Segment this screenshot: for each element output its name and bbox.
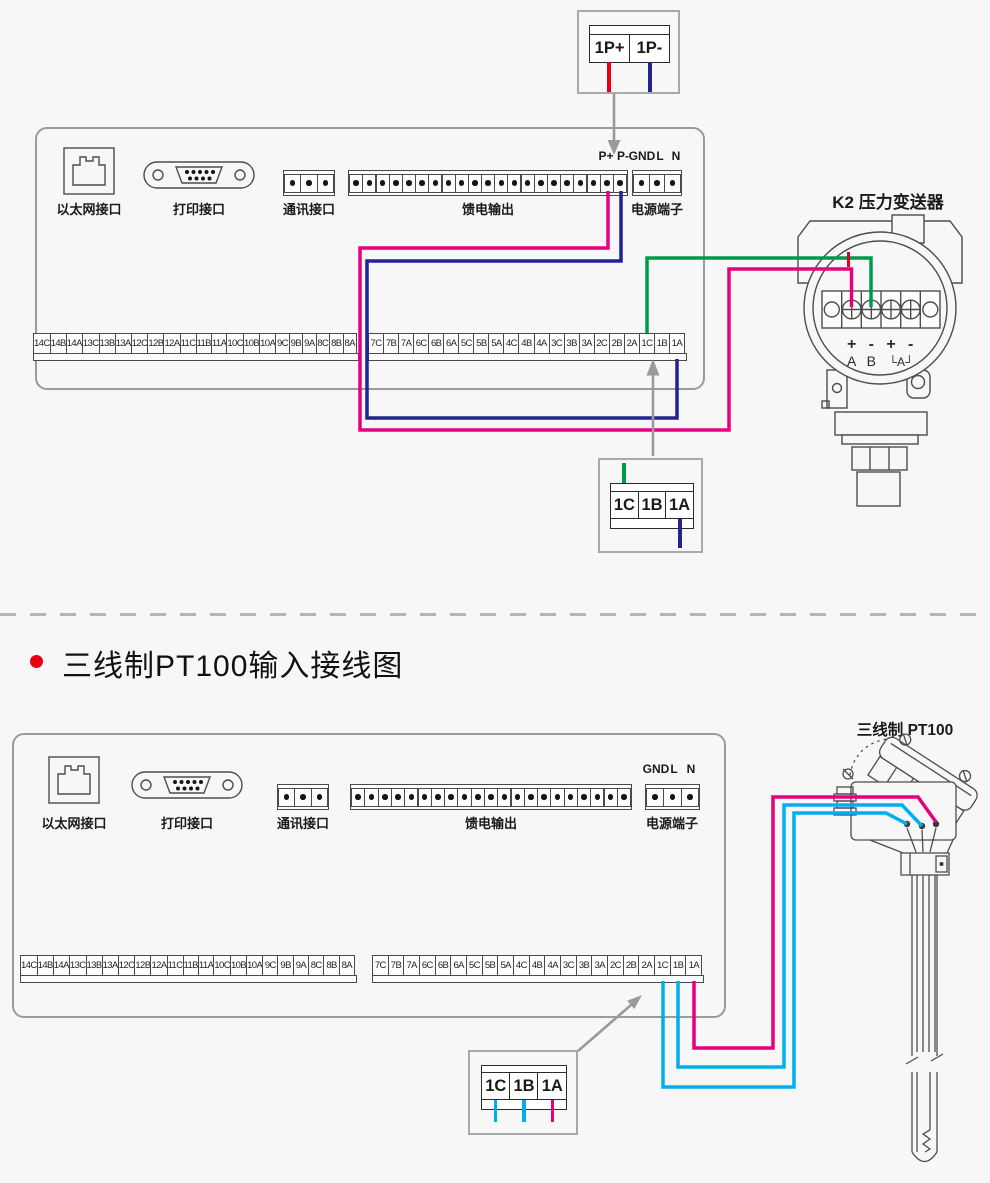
input-terminal-cell: 7B: [383, 333, 399, 354]
pt100-probe-drawing: [790, 700, 990, 1183]
power-terminal: [681, 788, 699, 807]
comm-terminal: [278, 788, 295, 807]
input-terminal-cell: 8B: [329, 333, 343, 354]
mark-n: N: [687, 762, 696, 776]
input-terminal-cell: 3C: [560, 955, 577, 976]
input-terminal-cell: 12A: [150, 955, 167, 976]
feed-output-strip: [350, 784, 632, 810]
power-terminal: [633, 174, 650, 193]
comm-port-label: 通讯接口: [277, 813, 329, 832]
printer-port-label: 打印接口: [161, 813, 213, 832]
callout-terminal-cell: 1C: [610, 491, 639, 519]
ethernet-port-icon: [48, 756, 100, 804]
input-terminal-cell: 6B: [428, 333, 444, 354]
input-terminal-cell: 9C: [262, 955, 278, 976]
callout-terminal-cell: 1A: [665, 491, 694, 519]
input-terminal-cell: 5A: [497, 955, 514, 976]
input-terminal-cell: 4C: [503, 333, 519, 354]
input-terminal-cell: 14A: [53, 955, 70, 976]
input-terminal-cell: 2A: [624, 333, 640, 354]
input-terminal-cell: 2B: [609, 333, 625, 354]
input-terminal-cell: 1B: [654, 333, 670, 354]
input-terminal-cell: 10A: [246, 955, 263, 976]
input-terminal-cell: 4A: [534, 333, 550, 354]
callout-terminal-cell: 1P+: [589, 34, 630, 63]
input-terminal-cell: 7B: [388, 955, 405, 976]
input-terminal-cell: 14A: [66, 333, 83, 354]
wire-stub-cyan: [494, 1100, 498, 1122]
input-terminal-cell: 10C: [226, 333, 244, 354]
input-terminal-cell: 13A: [115, 333, 132, 354]
input-terminal-callout-bottom: 1C1B1A: [468, 1050, 578, 1135]
printer-port-icon: [143, 160, 255, 190]
section-title: 三线制PT100输入接线图: [62, 641, 403, 685]
input-terminal-cell: 8B: [323, 955, 339, 976]
input-terminal-cell: 5B: [482, 955, 499, 976]
terminal-sign-1: +: [847, 336, 856, 353]
comm-terminal: [284, 174, 301, 193]
input-terminal-cell: 5A: [488, 333, 504, 354]
input-terminal-cell: 4C: [513, 955, 530, 976]
comm-terminal: [300, 174, 317, 193]
input-terminal-cell: 1B: [670, 955, 687, 976]
terminal-sign-2: -: [869, 336, 874, 353]
input-terminal-cell: 9A: [293, 955, 309, 976]
input-terminals-14-8: 14C14B14A13C13B13A12C12B12A11C11B11A10C1…: [33, 333, 357, 354]
input-terminal-cell: 6B: [435, 955, 452, 976]
mark-l: L: [670, 762, 677, 776]
feed-output-label: 馈电输出: [465, 813, 517, 832]
head-terminal-dot: [904, 821, 910, 827]
input-terminal-cell: 4B: [518, 333, 534, 354]
input-terminal-cell: 10A: [259, 333, 276, 354]
input-terminal-callout-top: 1C1B1A: [598, 458, 703, 553]
section-bullet: [30, 655, 43, 668]
input-terminal-cell: 5C: [466, 955, 483, 976]
input-terminal-cell: 1A: [669, 333, 685, 354]
mark-l: L: [656, 149, 663, 163]
input-terminal-cell: 5B: [473, 333, 489, 354]
input-terminal-cell: 11A: [211, 333, 227, 354]
comm-terminal: [294, 788, 311, 807]
input-terminal-cell: 14B: [50, 333, 67, 354]
printer-port-icon: [131, 770, 243, 800]
wire-stub-red: [607, 62, 611, 92]
wire-stub-blue: [678, 519, 682, 548]
input-terminal-cell: 4B: [529, 955, 546, 976]
terminal-sign-3: +: [886, 336, 895, 353]
input-terminal-cell: 11C: [180, 333, 197, 354]
power-terminal: [663, 788, 681, 807]
terminal-name-a: A: [847, 353, 857, 369]
input-terminal-cell: 7C: [368, 333, 384, 354]
feed-terminal: [617, 788, 631, 807]
input-terminal-cell: 11B: [196, 333, 212, 354]
input-terminal-cell: 10C: [213, 955, 231, 976]
wire-stub-blue: [648, 62, 652, 92]
input-terminal-cell: 3A: [591, 955, 608, 976]
input-terminal-cell: 14C: [20, 955, 38, 976]
comm-terminal: [317, 174, 334, 193]
ethernet-port-label: 以太网接口: [56, 199, 121, 218]
transmitter-flange: [835, 412, 927, 435]
input-terminal-cell: 12B: [147, 333, 164, 354]
input-terminal-cell: 2C: [594, 333, 610, 354]
input-terminal-cell: 9B: [289, 333, 303, 354]
wire-stub-magenta: [551, 1100, 555, 1122]
comm-terminal-block: [277, 784, 329, 810]
comm-port-label: 通讯接口: [283, 199, 335, 218]
input-terminals-7-1: 7C7B7A6C6B6A5C5B5A4C4B4A3C3B3A2C2B2A1C1B…: [372, 955, 702, 976]
pressure-transmitter-drawing: + - + - A B └A┘: [770, 185, 990, 525]
input-terminal-cell: 9C: [275, 333, 289, 354]
transmitter-hex-nut: [852, 447, 907, 470]
input-terminal-cell: 3A: [579, 333, 595, 354]
input-terminal-cell: 10B: [243, 333, 260, 354]
input-terminal-cell: 6A: [450, 955, 467, 976]
input-terminal-cell: 10B: [230, 955, 247, 976]
callout-cells-1c1b1a: 1C1B1A: [481, 1072, 567, 1100]
input-terminal-cell: 2A: [638, 955, 655, 976]
input-terminal-cell: 8C: [316, 333, 330, 354]
input-terminal-cell: 13B: [99, 333, 116, 354]
mark-gnd: GND: [643, 762, 670, 776]
power-terminal-label: 电源端子: [631, 199, 683, 218]
input-terminal-cell: 9A: [302, 333, 316, 354]
input-terminal-cell: 1C: [639, 333, 655, 354]
feed-terminal: [613, 174, 627, 193]
input-terminal-cell: 3B: [564, 333, 580, 354]
input-terminal-cell: 3B: [576, 955, 593, 976]
input-terminal-cell: 8C: [308, 955, 324, 976]
input-terminal-cell: 6A: [443, 333, 459, 354]
input-terminal-cell: 7C: [372, 955, 389, 976]
pt100-head-body: [851, 782, 956, 840]
input-terminals-7-1: 7C7B7A6C6B6A5C5B5A4C4B4A3C3B3A2C2B2A1C1B…: [368, 333, 685, 354]
input-terminal-cell: 4A: [544, 955, 561, 976]
mark-n: N: [672, 149, 681, 163]
input-terminal-cell: 7A: [403, 955, 420, 976]
input-terminal-cell: 12C: [131, 333, 149, 354]
input-terminal-cell: 12B: [134, 955, 151, 976]
callout-terminal-cell: 1B: [509, 1072, 539, 1100]
wiring-diagram-page: 1P+1P- 以太网接口 打印接口 通讯接口 馈电输出: [0, 0, 990, 1183]
input-terminal-cell: 6C: [419, 955, 436, 976]
callout-cells-1c1b1a: 1C1B1A: [610, 491, 694, 519]
printer-port-label: 打印接口: [173, 199, 225, 218]
input-terminal-cell: 7A: [398, 333, 414, 354]
power-terminal: [649, 174, 666, 193]
input-terminal-cell: 2C: [607, 955, 624, 976]
transmitter-stem: [857, 472, 900, 506]
head-terminal-dot: [933, 821, 939, 827]
input-terminal-cell: 5C: [458, 333, 474, 354]
comm-terminal: [311, 788, 328, 807]
terminal-name-b: B: [867, 353, 876, 369]
input-terminal-cell: 13A: [102, 955, 119, 976]
input-terminal-cell: 9B: [277, 955, 293, 976]
feed-terminal-callout: 1P+1P-: [577, 10, 680, 94]
input-terminal-cell: 3C: [549, 333, 565, 354]
input-terminal-cell: 2B: [623, 955, 640, 976]
head-terminal-dot: [919, 823, 925, 829]
feed-output-label: 馈电输出: [462, 199, 514, 218]
input-terminal-cell: 12A: [163, 333, 180, 354]
mark-p-minus: P-: [617, 149, 629, 163]
power-terminal-label: 电源端子: [646, 813, 698, 832]
power-terminal-block: [632, 170, 682, 196]
power-terminal: [664, 174, 681, 193]
mark-p-plus: P+: [598, 149, 613, 163]
terminal-sign-4: -: [908, 336, 913, 353]
input-terminal-cell: 11B: [183, 955, 199, 976]
ethernet-port-icon: [63, 147, 115, 195]
mark-gnd: GND: [629, 149, 656, 163]
input-terminal-cell: 11A: [198, 955, 214, 976]
input-terminal-cell: 13C: [69, 955, 87, 976]
input-terminal-cell: 8A: [339, 955, 355, 976]
power-terminal-block: [645, 784, 700, 810]
feed-output-strip: [348, 170, 628, 196]
input-terminal-cell: 1C: [654, 955, 671, 976]
callout-terminal-cell: 1P-: [629, 34, 670, 63]
input-terminal-cell: 14C: [33, 333, 51, 354]
terminal-name-loop: └A┘: [888, 355, 913, 369]
input-terminal-cell: 13C: [82, 333, 100, 354]
input-terminal-cell: 6C: [413, 333, 429, 354]
callout-cells-1p: 1P+1P-: [589, 34, 670, 63]
comm-terminal-block: [283, 170, 335, 196]
input-terminal-cell: 1A: [685, 955, 702, 976]
probe-tip: [912, 1152, 937, 1162]
power-terminal: [646, 788, 664, 807]
section-divider: [0, 613, 990, 616]
input-terminal-cell: 12C: [118, 955, 136, 976]
wire-stub-cyan: [522, 1100, 526, 1122]
input-terminal-cell: 8A: [343, 333, 357, 354]
input-terminal-cell: 14B: [37, 955, 54, 976]
ethernet-port-label: 以太网接口: [41, 813, 106, 832]
callout-terminal-cell: 1C: [481, 1072, 511, 1100]
rtd-resistor-symbol: [923, 1130, 930, 1152]
input-terminal-cell: 11C: [167, 955, 184, 976]
input-terminal-cell: 13B: [86, 955, 103, 976]
callout-terminal-cell: 1A: [537, 1072, 567, 1100]
callout-terminal-cell: 1B: [638, 491, 667, 519]
input-terminals-14-8: 14C14B14A13C13B13A12C12B12A11C11B11A10C1…: [20, 955, 355, 976]
